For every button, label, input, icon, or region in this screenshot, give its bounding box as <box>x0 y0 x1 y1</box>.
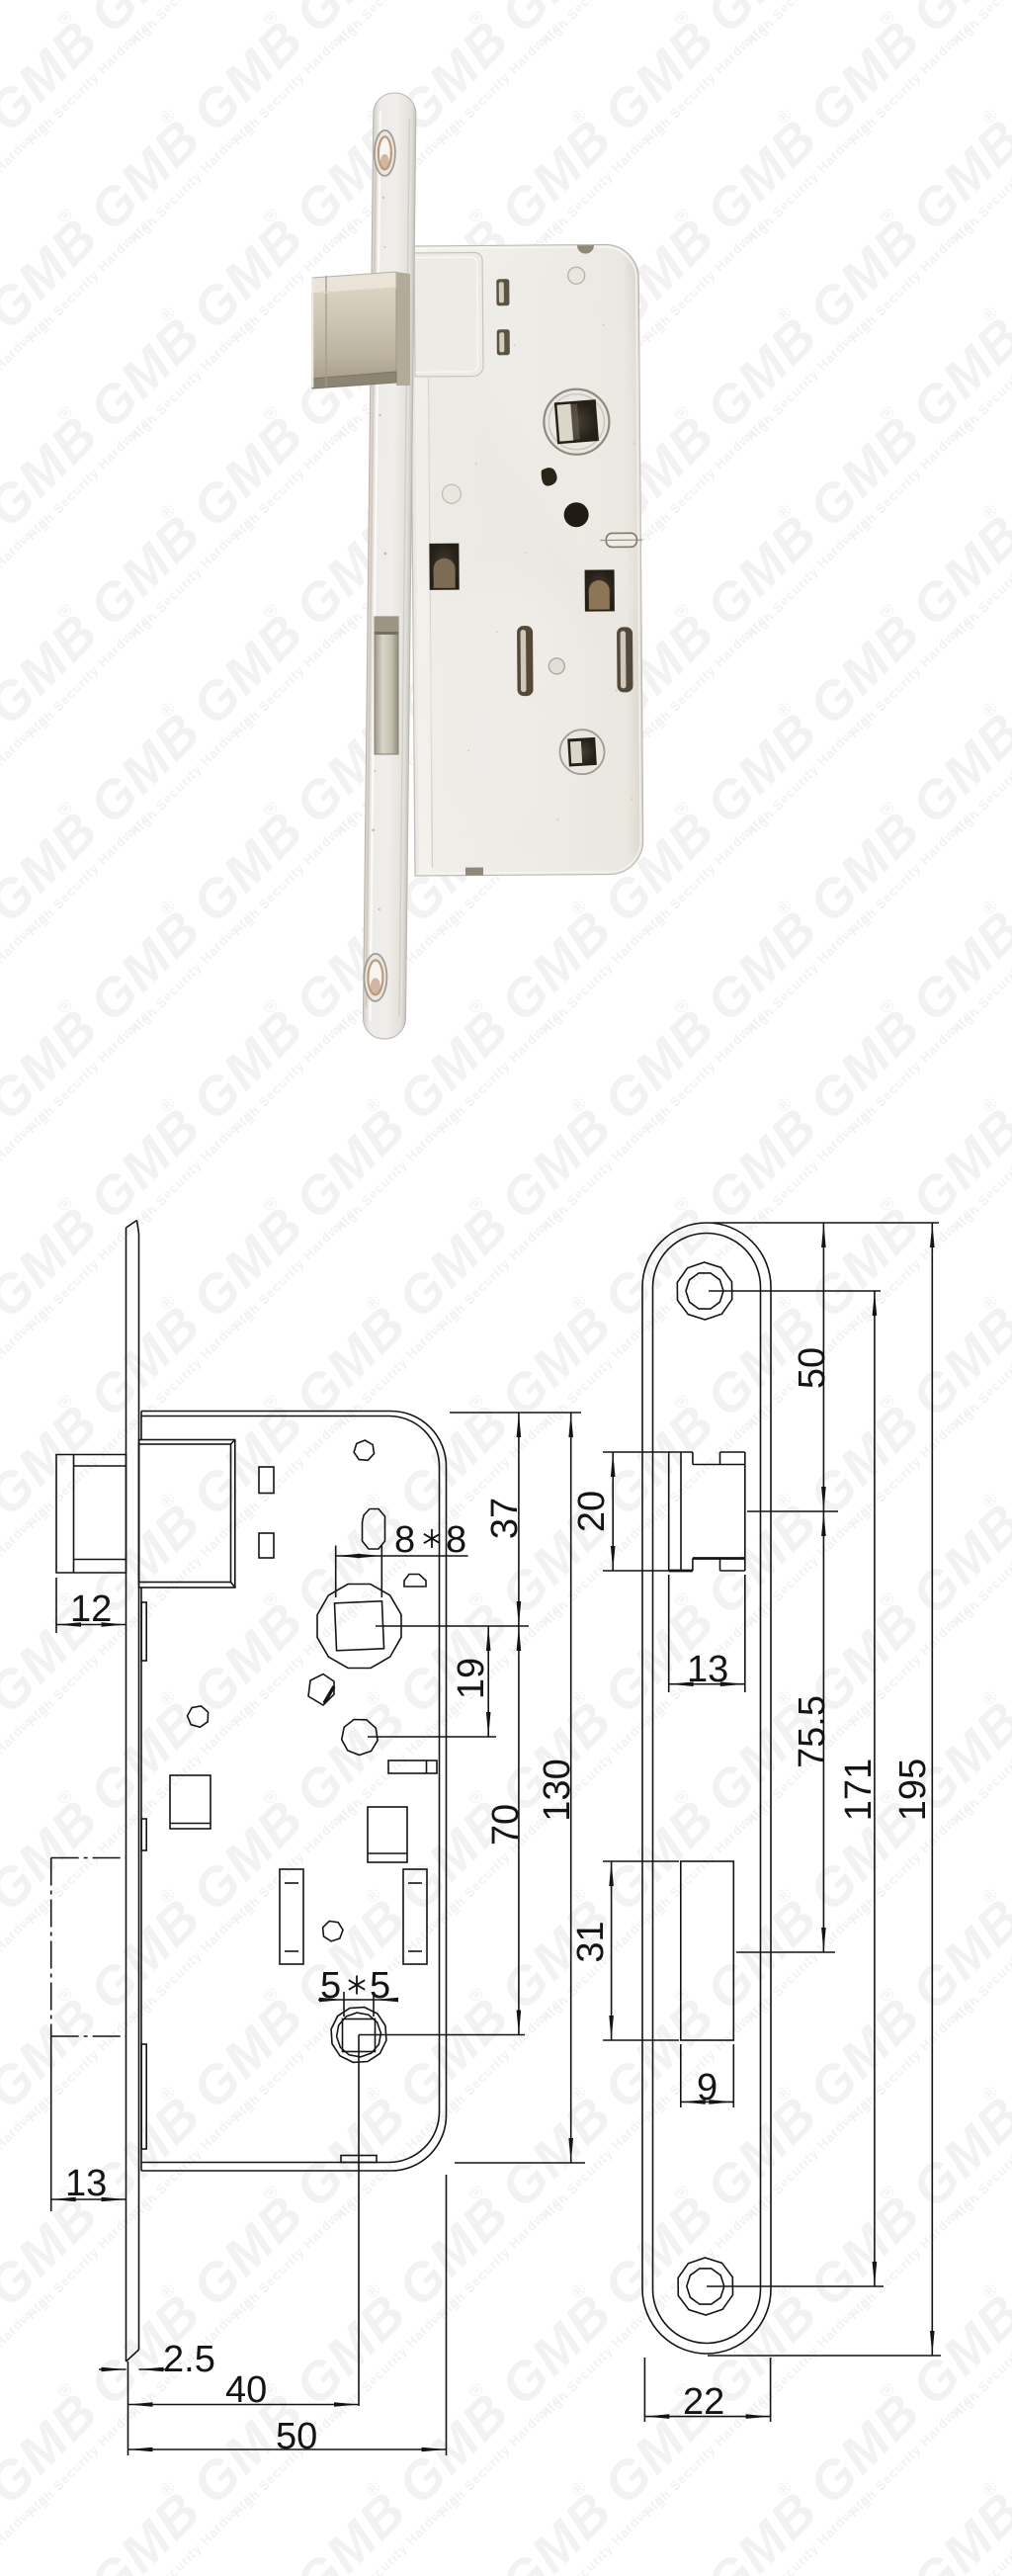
svg-text:8: 8 <box>394 1519 415 1561</box>
svg-text:75.5: 75.5 <box>792 1695 833 1768</box>
svg-text:70: 70 <box>485 1804 527 1846</box>
svg-text:40: 40 <box>225 2369 267 2411</box>
svg-text:5: 5 <box>320 1965 341 2007</box>
svg-text:13: 13 <box>687 1649 728 1690</box>
svg-text:130: 130 <box>537 1759 578 1821</box>
svg-text:22: 22 <box>683 2381 724 2423</box>
svg-text:50: 50 <box>792 1347 833 1389</box>
svg-text:13: 13 <box>65 2163 107 2204</box>
svg-text:37: 37 <box>484 1498 526 1539</box>
svg-text:31: 31 <box>570 1921 612 1962</box>
svg-text:195: 195 <box>892 1759 934 1821</box>
svg-text:5: 5 <box>370 1965 390 2007</box>
svg-text:12: 12 <box>70 1589 112 1630</box>
svg-text:19: 19 <box>451 1658 492 1699</box>
svg-text:171: 171 <box>838 1759 880 1821</box>
svg-text:9: 9 <box>697 2067 717 2108</box>
svg-text:20: 20 <box>571 1491 613 1532</box>
svg-text:50: 50 <box>276 2416 317 2457</box>
svg-text:2.5: 2.5 <box>163 2339 215 2380</box>
svg-text:8: 8 <box>446 1519 466 1561</box>
